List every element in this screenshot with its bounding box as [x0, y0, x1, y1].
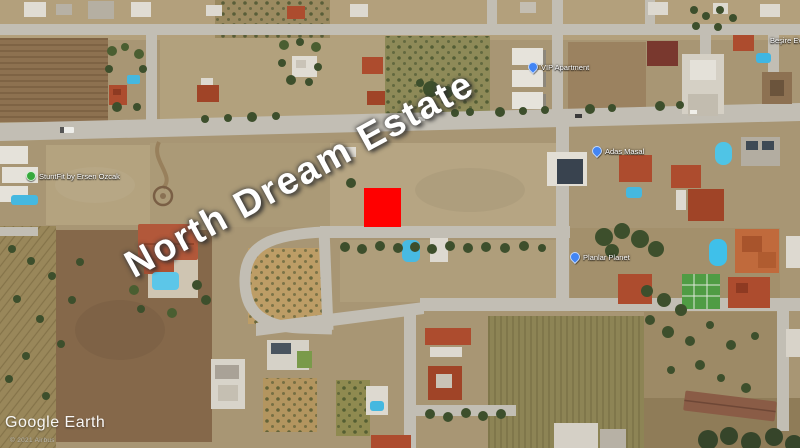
blue-place-pin-icon[interactable] — [526, 60, 540, 74]
place-label-corner[interactable]: Beşire Ev — [770, 36, 800, 45]
photo-label-text: StuntFit by Ersen Ozcak — [39, 172, 120, 181]
google-earth-viewport[interactable]: North Dream Estate StuntFit by Ersen Ozc… — [0, 0, 800, 448]
place-label-vip-apartment[interactable]: VIP Apartment — [528, 62, 589, 72]
satellite-map[interactable] — [0, 0, 800, 448]
copyright-text: © 2021 Airbus — [10, 437, 55, 444]
place-label-text: Beşire Ev — [770, 36, 800, 45]
place-label-text: VIP Apartment — [541, 63, 589, 72]
photo-label-stuntfit[interactable]: StuntFit by Ersen Ozcak — [26, 171, 120, 181]
place-label-text: Planlar Planet — [583, 253, 630, 262]
blue-place-pin-icon[interactable] — [568, 250, 582, 264]
green-photo-pin-icon[interactable] — [26, 171, 36, 181]
place-label-masal[interactable]: Adas Masal — [592, 146, 644, 156]
selected-plot-marker[interactable] — [364, 188, 401, 227]
place-label-planlar[interactable]: Planlar Planet — [570, 252, 630, 262]
blue-place-pin-icon[interactable] — [590, 144, 604, 158]
google-earth-logo: Google Earth — [5, 414, 105, 432]
place-label-text: Adas Masal — [605, 147, 644, 156]
